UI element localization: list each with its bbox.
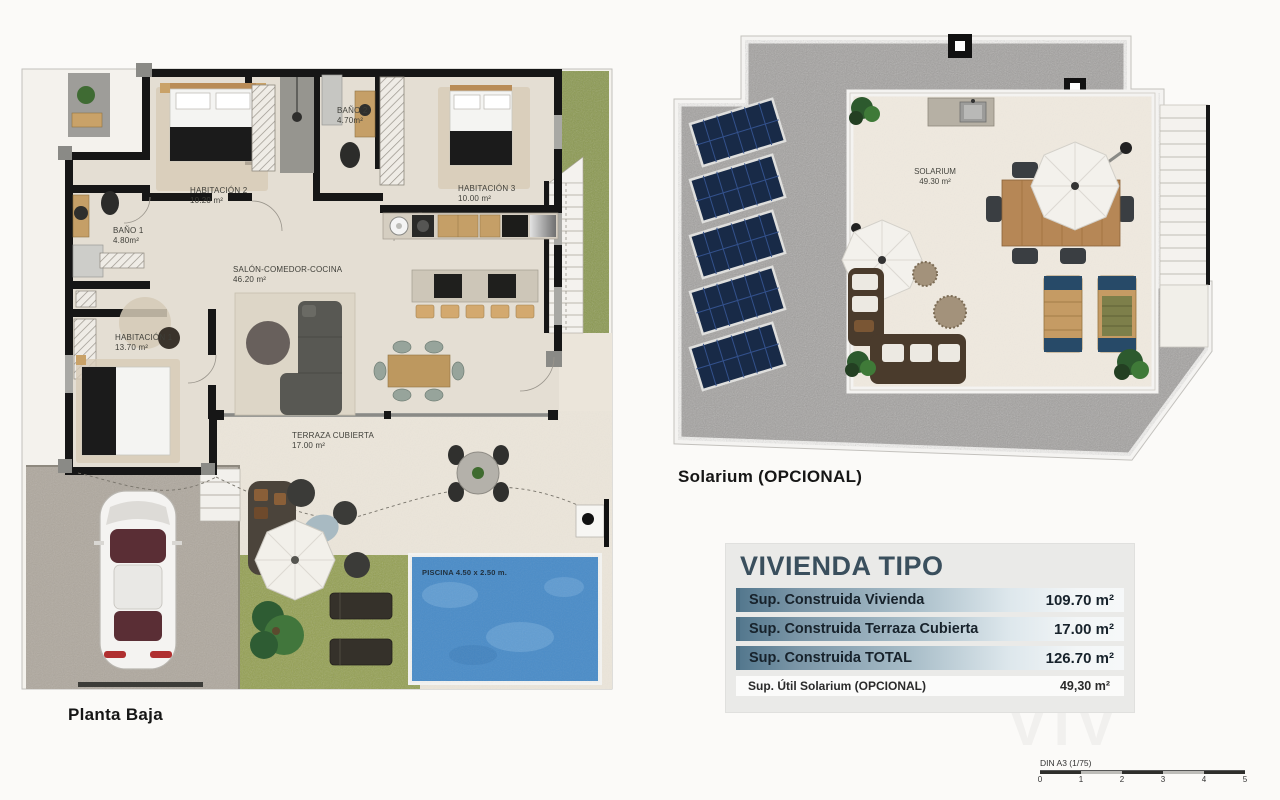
kitchen-counter (383, 213, 558, 239)
room-area: 17.00 m² (292, 441, 374, 451)
room-label-bano-1: BAÑO 1 4.80m² (113, 226, 144, 245)
pool-label: PISCINA 4.50 x 2.50 m. (422, 568, 507, 577)
row-label: Sup. Construida Terraza Cubierta (740, 621, 978, 637)
ground-floor-plan (18, 55, 643, 705)
summary-row-solarium-optional: Sup. Útil Solarium (OPCIONAL) 49,30 m² (736, 676, 1124, 696)
room-area: 10.00 m² (458, 194, 515, 204)
room-label-terraza: TERRAZA CUBIERTA 17.00 m² (292, 431, 374, 450)
room-area: 4.80m² (113, 236, 144, 246)
room-name: HABITACIÓN 1 (115, 333, 172, 343)
kitchen-island (412, 270, 538, 318)
scale-tick: 2 (1117, 775, 1127, 784)
scale-bar-segments (1040, 770, 1245, 774)
summary-row-total: Sup. Construida TOTAL 126.70 m² (736, 646, 1124, 670)
row-label: Sup. Construida TOTAL (740, 650, 912, 666)
entry-porch (68, 73, 110, 137)
car (94, 491, 182, 669)
scale-tick: 0 (1035, 775, 1045, 784)
room-label-bano-2: BAÑO 2 4.70m² (337, 106, 368, 125)
scale-segment (1163, 771, 1204, 774)
room-area: 46.20 m² (233, 275, 342, 285)
summary-row-terraza: Sup. Construida Terraza Cubierta 17.00 m… (736, 617, 1124, 641)
row-value: 126.70 m² (1046, 650, 1124, 667)
room-area: 4.70m² (337, 116, 368, 126)
room-label-habitacion-3: HABITACIÓN 3 10.00 m² (458, 184, 515, 203)
room-name: HABITACIÓN 3 (458, 184, 515, 194)
wardrobe-habitacion-2 (252, 85, 275, 171)
scale-segment (1081, 771, 1122, 774)
room-name: BAÑO 1 (113, 226, 144, 236)
entry-steps (200, 469, 240, 521)
row-label: Sup. Útil Solarium (OPCIONAL) (736, 679, 926, 693)
row-label: Sup. Construida Vivienda (740, 592, 924, 608)
terrace-umbrella (255, 520, 335, 600)
room-name: SOLARIUM (890, 167, 980, 177)
summary-table: VIVIENDA TIPO Sup. Construida Vivienda 1… (726, 544, 1134, 712)
scale-segment (1204, 771, 1245, 774)
solarium-plan (660, 28, 1225, 473)
room-label-salon: SALÓN-COMEDOR-COCINA 46.20 m² (233, 265, 342, 284)
row-value: 17.00 m² (1054, 621, 1124, 638)
bed-habitacion-2 (156, 83, 268, 191)
room-label-solarium: SOLARIUM 49.30 m² (890, 167, 980, 186)
scale-label: DIN A3 (1/75) (1040, 758, 1250, 768)
scale-tick: 4 (1199, 775, 1209, 784)
roof-staircase (1160, 105, 1210, 347)
wardrobe-habitacion-3 (380, 77, 404, 185)
scale-tick: 1 (1076, 775, 1086, 784)
scale-tick: 5 (1240, 775, 1250, 784)
room-name: TERRAZA CUBIERTA (292, 431, 374, 441)
row-value: 109.70 m² (1046, 592, 1124, 609)
room-area: 13.70 m² (115, 343, 172, 353)
floorplan-sheet: { "ground_floor": { "caption": "Planta B… (0, 0, 1280, 800)
staircase (544, 157, 583, 333)
scale-segment (1122, 771, 1163, 774)
scale-tick: 3 (1158, 775, 1168, 784)
summary-title: VIVIENDA TIPO (740, 551, 1134, 582)
bed-habitacion-3 (438, 85, 530, 189)
room-name: HABITACIÓN 2 (190, 186, 247, 196)
scale-bar: DIN A3 (1/75) 0 1 2 3 4 5 (1040, 758, 1250, 785)
solarium-caption: Solarium (OPCIONAL) (678, 467, 862, 487)
row-value: 49,30 m² (1060, 679, 1124, 693)
room-label-habitacion-1: HABITACIÓN 1 13.70 m² (115, 333, 172, 352)
summary-row-vivienda: Sup. Construida Vivienda 109.70 m² (736, 588, 1124, 612)
room-name: BAÑO 2 (337, 106, 368, 116)
solarium-sink (928, 98, 994, 126)
room-label-habitacion-2: HABITACIÓN 2 10.20 m² (190, 186, 247, 205)
room-name: SALÓN-COMEDOR-COCINA (233, 265, 342, 275)
scale-ticks: 0 1 2 3 4 5 (1040, 775, 1250, 785)
ground-floor-caption: Planta Baja (68, 705, 163, 725)
solar-panels (690, 99, 785, 390)
room-area: 49.30 m² (890, 177, 980, 187)
scale-segment (1040, 771, 1081, 774)
room-area: 10.20 m² (190, 196, 247, 206)
stair-niche (280, 77, 314, 173)
